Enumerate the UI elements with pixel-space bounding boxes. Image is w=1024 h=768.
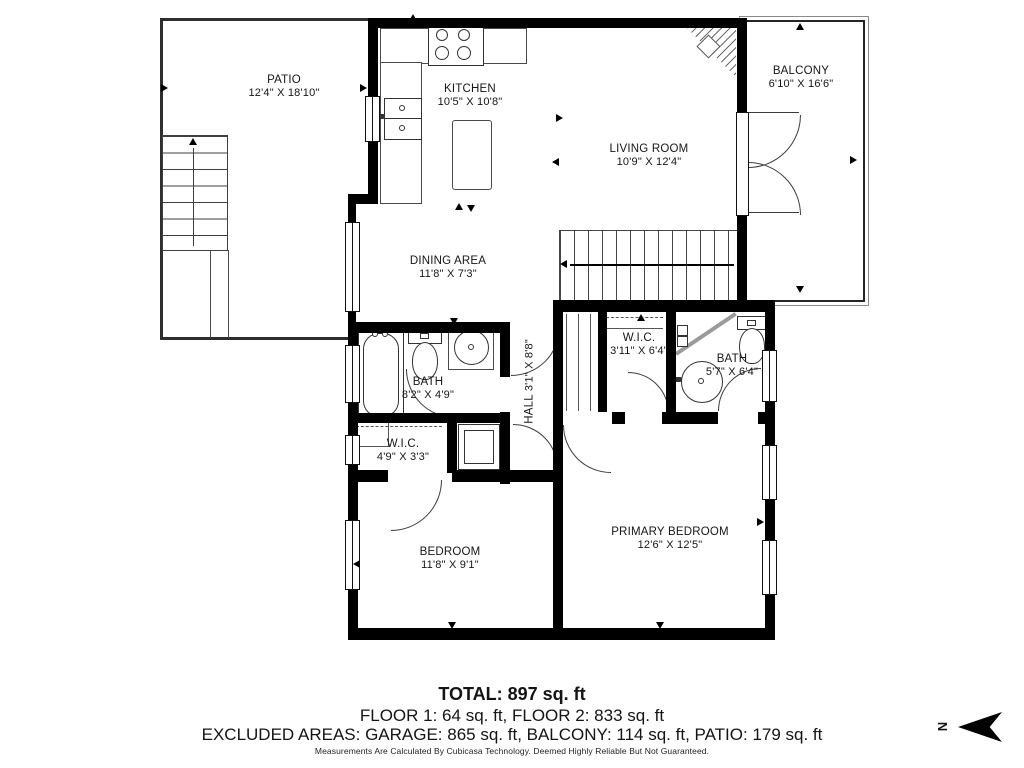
dimension-arrow <box>450 318 458 325</box>
room-name: PATIO <box>204 73 364 87</box>
stove-burner <box>435 46 449 60</box>
room-label-patio: PATIO 12'4" X 18'10" <box>204 73 364 101</box>
room-label-hall: HALL 3'1" X 8'8" <box>523 301 538 461</box>
dimension-arrow <box>494 20 502 27</box>
excluded-areas-text: EXCLUDED AREAS: GARAGE: 865 sq. ft, BALC… <box>0 725 1024 745</box>
room-name: BATH <box>652 352 812 366</box>
dimension-arrow <box>455 203 463 210</box>
room-dims: 5'7" X 6'4" <box>652 366 812 380</box>
bath2-door-arc <box>718 368 804 454</box>
dimension-arrow <box>467 205 475 212</box>
wall-segment <box>348 482 358 520</box>
disclaimer-text: Measurements Are Calculated By Cubicasa … <box>0 746 1024 756</box>
room-dims: 11'8" X 9'1" <box>370 559 530 573</box>
dimension-arrow <box>556 114 563 122</box>
balcony-door-frame <box>736 112 749 216</box>
wall-segment <box>372 18 747 28</box>
wall-segment <box>348 204 356 222</box>
room-dims: 11'8" X 7'3" <box>368 268 528 282</box>
room-dims: 10'9" X 12'4" <box>569 156 729 170</box>
room-name: BEDROOM <box>370 545 530 559</box>
wall-segment <box>348 333 358 345</box>
room-dims: 4'9" X 3'3" <box>323 451 483 465</box>
wall-segment <box>348 413 510 423</box>
room-dims: 12'6" X 12'5" <box>590 539 750 553</box>
window <box>345 520 360 590</box>
balcony-door-leaf <box>747 112 799 113</box>
stove-burner <box>458 29 470 41</box>
wall-segment <box>348 194 378 204</box>
wall-segment <box>737 212 747 304</box>
window <box>345 222 360 312</box>
window <box>365 96 380 142</box>
room-dims: 12'4" X 18'10" <box>204 87 364 101</box>
sink-drain <box>399 125 405 131</box>
sink-drain <box>468 344 474 350</box>
wall-segment <box>368 18 378 96</box>
wall-segment <box>452 470 563 482</box>
floorplan: PATIO 12'4" X 18'10" KITCHEN 10'5" X 10'… <box>0 0 1024 768</box>
dimension-arrow <box>448 622 456 629</box>
dimension-arrow <box>409 14 417 21</box>
room-label-wic1: W.I.C. 4'9" X 3'3" <box>323 437 483 465</box>
stove-burner <box>457 46 471 60</box>
wall-segment <box>612 412 625 424</box>
room-name: PRIMARY BEDROOM <box>590 525 750 539</box>
wall-segment <box>662 412 718 424</box>
room-name: BATH <box>348 375 508 389</box>
patio-outline-bottom <box>160 337 356 340</box>
window <box>762 540 777 595</box>
closet-rod-dashed <box>606 317 663 318</box>
wall-segment <box>348 588 358 628</box>
patio-stair-rail <box>210 250 229 338</box>
room-label-living: LIVING ROOM 10'9" X 12'4" <box>569 142 729 170</box>
wall-segment <box>598 312 607 412</box>
living-room-stairs <box>559 230 739 302</box>
wall-segment <box>348 628 775 640</box>
balcony-door-leaf <box>747 212 799 213</box>
room-dims: 3'1" X 8'8" <box>524 339 536 391</box>
north-label: N <box>935 722 950 731</box>
room-name: LIVING ROOM <box>569 142 729 156</box>
total-area-text: TOTAL: 897 sq. ft <box>0 684 1024 705</box>
room-dims: 6'10" X 16'6" <box>721 78 881 92</box>
room-label-balcony: BALCONY 6'10" X 16'6" <box>721 64 881 92</box>
room-name: HALL <box>524 395 536 424</box>
wall-segment <box>348 423 358 435</box>
dimension-arrow <box>850 156 857 164</box>
dimension-arrow <box>637 314 645 321</box>
kitchen-island <box>452 120 492 190</box>
dimension-arrow <box>796 286 804 293</box>
stove-burner <box>436 29 448 41</box>
wall-segment <box>500 322 510 377</box>
wall-segment <box>348 322 510 333</box>
closet-rod-dashed <box>356 426 442 427</box>
toilet-flush <box>747 320 756 326</box>
room-name: BALCONY <box>721 64 881 78</box>
room-label-bath2: BATH 5'7" X 6'4" <box>652 352 812 380</box>
room-dims: 10'5" X 10'8" <box>390 96 550 110</box>
stairs-direction-line <box>570 264 734 266</box>
toilet-flush <box>420 333 429 339</box>
room-label-dining: DINING AREA 11'8" X 7'3" <box>368 254 528 282</box>
dimension-arrow <box>353 560 360 568</box>
dimension-arrow <box>161 84 168 92</box>
stairs-down-arrow <box>560 260 567 268</box>
stairs-up-arrow <box>189 138 197 145</box>
wall-segment <box>368 140 378 202</box>
dimension-arrow <box>656 622 664 629</box>
floor-areas-text: FLOOR 1: 64 sq. ft, FLOOR 2: 833 sq. ft <box>0 706 1024 726</box>
room-name: DINING AREA <box>368 254 528 268</box>
window <box>762 445 777 500</box>
dimension-arrow <box>796 23 804 30</box>
wall-segment <box>765 498 775 540</box>
wall-segment <box>765 312 775 350</box>
room-dims: 8'2" X 4'9" <box>348 389 508 403</box>
dimension-arrow <box>552 158 559 166</box>
room-name: W.I.C. <box>559 331 719 345</box>
wall-segment <box>557 300 775 312</box>
patio-stairs <box>162 135 228 251</box>
wall-segment <box>765 400 775 445</box>
room-name: KITCHEN <box>390 82 550 96</box>
patio-stairs-centerline <box>193 148 194 246</box>
room-label-primary: PRIMARY BEDROOM 12'6" X 12'5" <box>590 525 750 553</box>
room-label-kitchen: KITCHEN 10'5" X 10'8" <box>390 82 550 110</box>
dimension-arrow <box>757 518 764 526</box>
room-label-bedroom: BEDROOM 11'8" X 9'1" <box>370 545 530 573</box>
room-name: W.I.C. <box>323 437 483 451</box>
patio-outline-top <box>160 18 372 21</box>
closet-shelf-line <box>606 328 663 329</box>
stairwell-treads <box>566 314 597 411</box>
room-label-bath1: BATH 8'2" X 4'9" <box>348 375 508 403</box>
